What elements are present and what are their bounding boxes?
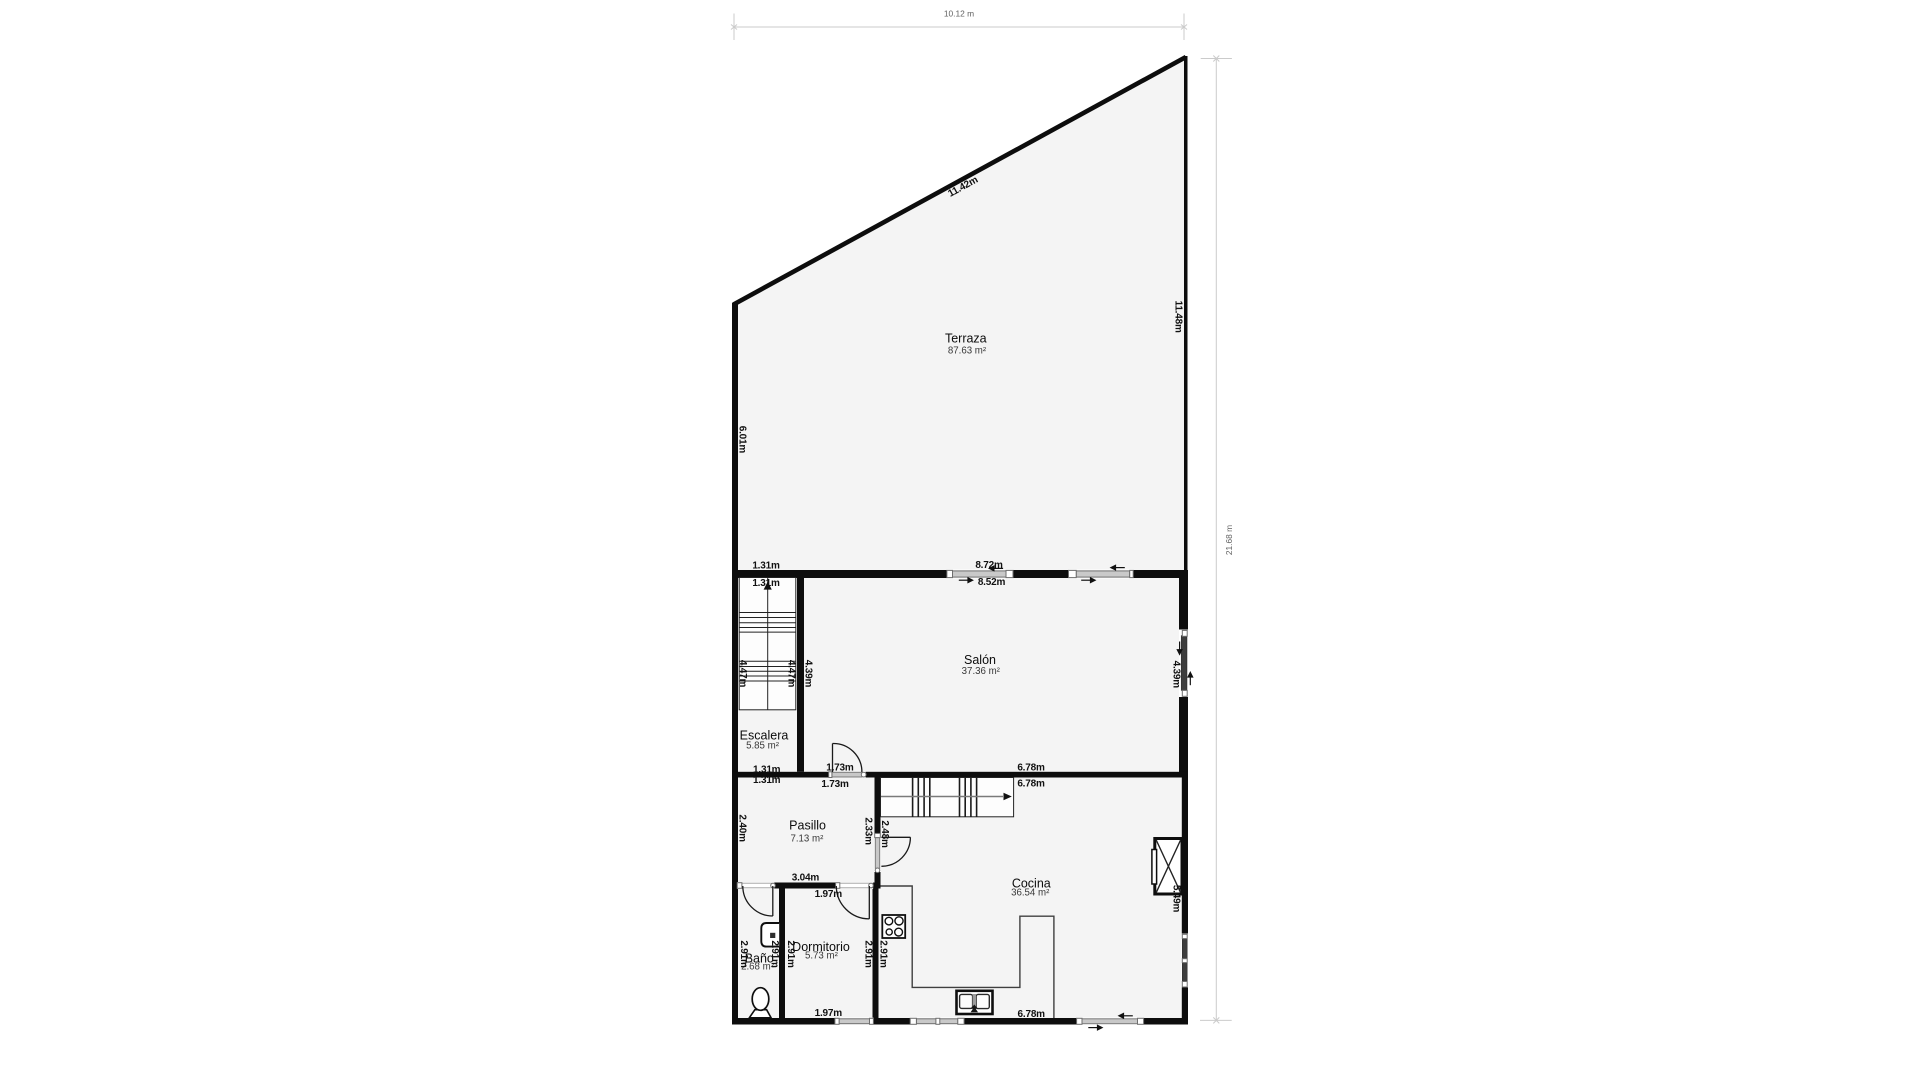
svg-text:5.85 m²: 5.85 m² — [746, 741, 780, 752]
svg-text:21.68 m: 21.68 m — [1224, 525, 1234, 555]
svg-text:Terraza: Terraza — [945, 332, 987, 346]
svg-text:2.91m: 2.91m — [863, 940, 874, 968]
svg-text:4.47m: 4.47m — [737, 660, 748, 688]
svg-text:6.01m: 6.01m — [737, 426, 748, 454]
svg-text:4.39m: 4.39m — [1171, 661, 1182, 689]
svg-text:7.13 m²: 7.13 m² — [790, 834, 824, 845]
svg-text:4.39m: 4.39m — [803, 660, 814, 688]
svg-text:2.40m: 2.40m — [736, 814, 747, 842]
svg-text:1.73m: 1.73m — [821, 779, 849, 790]
svg-text:4.47m: 4.47m — [786, 660, 797, 688]
svg-text:6.78m: 6.78m — [1017, 763, 1045, 774]
svg-text:2.91m: 2.91m — [738, 940, 749, 968]
svg-text:2.91m: 2.91m — [878, 940, 889, 968]
svg-text:6.78m: 6.78m — [1018, 1009, 1046, 1020]
svg-text:2.33m: 2.33m — [863, 817, 874, 845]
svg-text:5.49m: 5.49m — [1170, 885, 1181, 913]
svg-text:87.63 m²: 87.63 m² — [948, 346, 987, 357]
svg-text:36.54 m²: 36.54 m² — [1011, 887, 1050, 898]
svg-text:Pasillo: Pasillo — [789, 819, 826, 833]
svg-text:2.48m: 2.48m — [879, 820, 890, 848]
svg-text:3.04m: 3.04m — [792, 873, 820, 884]
svg-text:8.52m: 8.52m — [978, 577, 1006, 588]
svg-text:1.97m: 1.97m — [815, 1008, 843, 1019]
svg-text:37.36 m²: 37.36 m² — [962, 666, 1001, 677]
svg-text:1.97m: 1.97m — [815, 889, 843, 900]
svg-text:11.48m: 11.48m — [1172, 301, 1183, 333]
svg-text:1.73m: 1.73m — [826, 762, 854, 773]
svg-text:Salón: Salón — [964, 653, 996, 667]
svg-text:2.91m: 2.91m — [785, 940, 796, 968]
svg-text:1.31m: 1.31m — [752, 578, 780, 589]
svg-text:1.31m: 1.31m — [753, 775, 781, 786]
svg-text:5.73 m²: 5.73 m² — [805, 951, 839, 962]
svg-text:10.12 m: 10.12 m — [944, 8, 974, 18]
svg-text:8.72m: 8.72m — [975, 560, 1003, 571]
svg-text:1.31m: 1.31m — [752, 560, 780, 571]
svg-text:2.91m: 2.91m — [769, 940, 780, 968]
svg-text:6.78m: 6.78m — [1017, 778, 1045, 789]
svg-text:1.31m: 1.31m — [753, 765, 781, 776]
